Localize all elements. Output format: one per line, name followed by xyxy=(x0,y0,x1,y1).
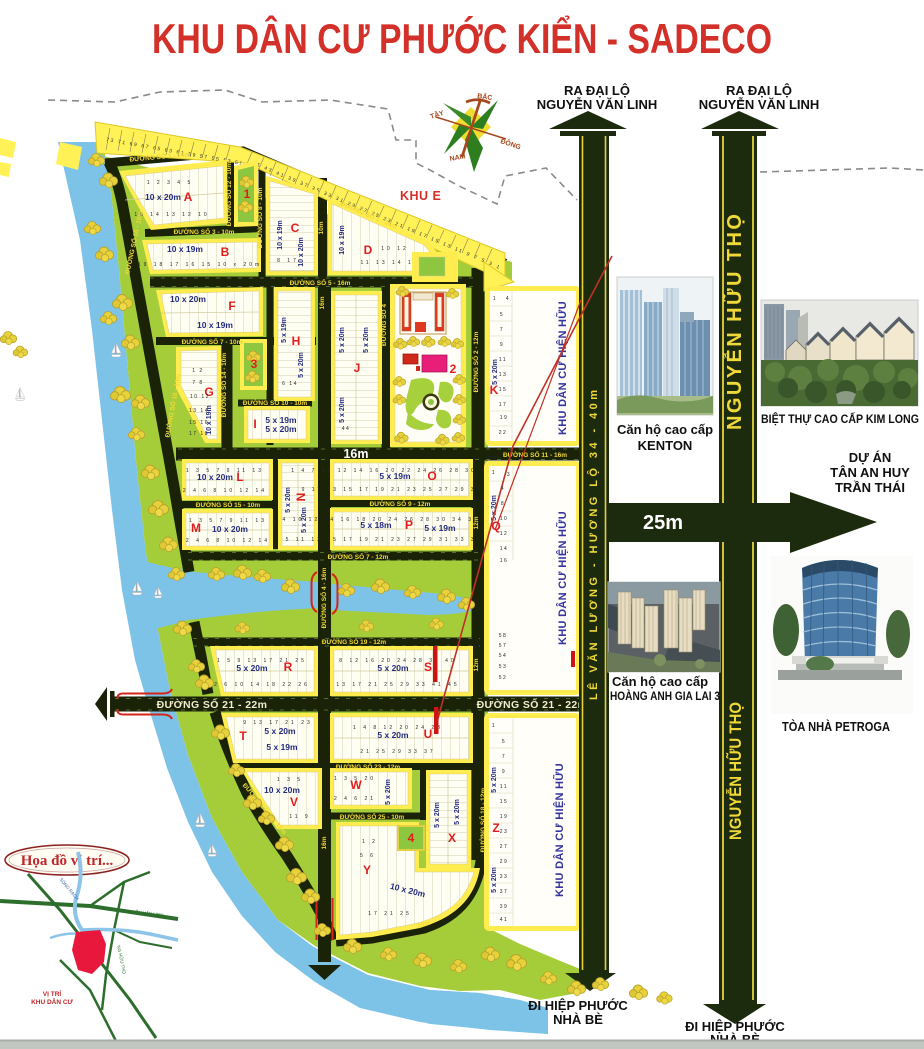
svg-text:1 4 8 12 20 24 28: 1 4 8 12 20 24 28 xyxy=(353,725,443,731)
svg-text:16m: 16m xyxy=(321,836,328,849)
svg-text:7 8: 7 8 xyxy=(192,380,203,386)
svg-text:KHU DÂN CƯ PHƯỚC KIỂN - SADECO: KHU DÂN CƯ PHƯỚC KIỂN - SADECO xyxy=(152,14,772,62)
svg-text:53: 53 xyxy=(499,664,508,670)
svg-text:KHU DÂN CƯ HIỆN HỮU: KHU DÂN CƯ HIỆN HỮU xyxy=(556,511,569,645)
svg-text:12m: 12m xyxy=(473,658,480,671)
svg-text:NGUYỄN HỮU THỌ: NGUYỄN HỮU THỌ xyxy=(725,702,745,840)
svg-text:1 3 5: 1 3 5 xyxy=(277,777,303,783)
svg-text:10 x 20m: 10 x 20m xyxy=(170,294,206,304)
svg-text:B: B xyxy=(221,245,230,259)
svg-text:5 x 20m: 5 x 20m xyxy=(454,799,461,825)
svg-text:10 x 19m: 10 x 19m xyxy=(339,225,346,255)
svg-text:K: K xyxy=(490,383,499,397)
svg-text:22: 22 xyxy=(499,430,508,436)
svg-text:BIỆT THỰ CAO CẤP KIM LONG: BIỆT THỰ CAO CẤP KIM LONG xyxy=(761,411,919,426)
svg-text:11 9: 11 9 xyxy=(289,814,310,820)
svg-text:7: 7 xyxy=(502,754,506,760)
svg-text:58: 58 xyxy=(499,633,508,639)
svg-text:VỊ TRÍ: VỊ TRÍ xyxy=(43,989,62,998)
svg-text:5 x 20m: 5 x 20m xyxy=(434,802,441,828)
svg-text:1 2: 1 2 xyxy=(362,839,378,845)
svg-text:1 3 5 7 9 11 13: 1 3 5 7 9 11 13 xyxy=(186,468,264,474)
svg-text:HOÀNG ANH GIA LAI 3: HOÀNG ANH GIA LAI 3 xyxy=(610,688,720,703)
svg-text:1: 1 xyxy=(492,470,496,476)
svg-text:3: 3 xyxy=(507,472,511,478)
svg-text:4: 4 xyxy=(506,296,510,302)
svg-text:NGUYỄN HỮU THỌ: NGUYỄN HỮU THỌ xyxy=(722,214,746,430)
svg-text:ĐI HIỆP PHƯỚC: ĐI HIỆP PHƯỚC xyxy=(528,998,628,1013)
svg-text:9: 9 xyxy=(500,342,504,348)
svg-text:8 12 16 20 24 28 3: 8 12 16 20 24 28 32 40 xyxy=(339,658,456,664)
svg-text:4: 4 xyxy=(408,831,415,845)
svg-text:10 x 19m: 10 x 19m xyxy=(277,220,284,250)
svg-text:F: F xyxy=(228,299,235,313)
svg-text:41: 41 xyxy=(500,917,509,923)
svg-text:5 x 19m: 5 x 19m xyxy=(281,317,288,343)
svg-text:52: 52 xyxy=(499,675,508,681)
svg-text:10 x 20m: 10 x 20m xyxy=(145,192,181,202)
svg-text:1 3 5 20: 1 3 5 20 xyxy=(334,776,376,782)
svg-text:ĐƯỜNG SỐ 21 - 22m: ĐƯỜNG SỐ 21 - 22m xyxy=(477,697,588,711)
svg-text:6 14: 6 14 xyxy=(282,381,298,387)
svg-text:13: 13 xyxy=(499,372,508,378)
svg-text:33: 33 xyxy=(500,874,509,880)
svg-text:9: 9 xyxy=(502,769,506,775)
svg-text:39: 39 xyxy=(500,904,509,910)
svg-text:5 6: 5 6 xyxy=(360,853,376,859)
svg-text:1 4 7 10 12 14 16 20 22 24 26: 1 4 7 10 12 14 16 20 22 24 26 28 30 32 3… xyxy=(291,468,509,474)
svg-text:29: 29 xyxy=(500,859,509,865)
svg-text:NHÀ BÈ: NHÀ BÈ xyxy=(553,1012,603,1027)
svg-text:16m: 16m xyxy=(343,447,368,461)
svg-text:10 x 19m: 10 x 19m xyxy=(167,244,203,254)
svg-text:17 21 25: 17 21 25 xyxy=(368,911,411,917)
svg-text:H: H xyxy=(292,334,301,348)
svg-text:5 x 20m: 5 x 20m xyxy=(339,397,346,423)
svg-text:KHU DÂN CƯ HIỆN HỮU: KHU DÂN CƯ HIỆN HỮU xyxy=(556,301,569,435)
svg-text:1: 1 xyxy=(492,723,496,729)
svg-text:16: 16 xyxy=(500,558,509,564)
svg-text:2: 2 xyxy=(450,362,457,376)
svg-text:5 x 20m: 5 x 20m xyxy=(236,663,268,673)
svg-text:5 x 20m: 5 x 20m xyxy=(385,779,392,805)
svg-text:54: 54 xyxy=(499,653,508,659)
svg-text:RA ĐẠI LỘ: RA ĐẠI LỘ xyxy=(726,83,792,98)
svg-text:10 x 19m: 10 x 19m xyxy=(206,405,213,435)
svg-text:5 x 20m: 5 x 20m xyxy=(492,359,499,385)
svg-text:37: 37 xyxy=(500,889,509,895)
svg-text:1: 1 xyxy=(493,296,497,302)
svg-text:5: 5 xyxy=(500,312,504,318)
svg-text:10m: 10m xyxy=(318,221,325,234)
svg-text:TÒA NHÀ PETROGA: TÒA NHÀ PETROGA xyxy=(782,719,890,734)
svg-text:11: 11 xyxy=(500,784,508,790)
svg-text:5 x 20m: 5 x 20m xyxy=(339,327,346,353)
svg-text:1: 1 xyxy=(244,187,251,201)
svg-text:19: 19 xyxy=(500,415,509,421)
svg-text:16m: 16m xyxy=(319,296,326,309)
svg-text:KHU DÂN CƯ: KHU DÂN CƯ xyxy=(31,997,73,1006)
svg-text:10 x 20m: 10 x 20m xyxy=(298,237,305,267)
svg-text:5 11 13 15 17 19 21 23 27 29 3: 5 11 13 15 17 19 21 23 27 29 31 33 37 41… xyxy=(286,537,515,543)
svg-text:1 5 9 13 17 21 25: 1 5 9 13 17 21 25 xyxy=(217,658,307,664)
svg-text:15: 15 xyxy=(500,799,509,805)
svg-text:21 25 29 33 37: 21 25 29 33 37 xyxy=(360,749,435,755)
svg-text:ĐƯỜNG SỐ 21 - 22m: ĐƯỜNG SỐ 21 - 22m xyxy=(157,697,268,711)
svg-text:9 11 13 15 17 19 21 23 25 27 2: 9 11 13 15 17 19 21 23 25 27 29 31 33 xyxy=(302,487,499,493)
svg-text:11 13 14 15: 11 13 14 15 xyxy=(360,260,419,266)
svg-text:15: 15 xyxy=(499,387,508,393)
svg-text:KENTON: KENTON xyxy=(638,438,693,453)
svg-text:14: 14 xyxy=(500,546,509,552)
svg-text:A: A xyxy=(184,190,193,204)
svg-text:TRẦN THÁI: TRẦN THÁI xyxy=(835,480,905,495)
svg-text:C: C xyxy=(291,221,300,235)
svg-text:KHU DÂN CƯ HIỆN HỮU: KHU DÂN CƯ HIỆN HỮU xyxy=(553,763,566,897)
svg-text:2 4 6 8 10 12 14: 2 4 6 8 10 12 14 xyxy=(183,488,267,494)
svg-text:DỰ ÁN: DỰ ÁN xyxy=(849,450,892,465)
svg-text:I: I xyxy=(253,417,256,431)
svg-text:D: D xyxy=(364,243,373,257)
svg-text:10 12: 10 12 xyxy=(190,394,210,400)
svg-text:2 4 6 8 10 12 14: 2 4 6 8 10 12 14 xyxy=(186,538,270,544)
svg-text:5 x 20m: 5 x 20m xyxy=(264,726,296,736)
svg-text:10: 10 xyxy=(500,516,509,522)
svg-text:5 x 20m: 5 x 20m xyxy=(491,767,498,793)
svg-text:Căn hộ cao cấp: Căn hộ cao cấp xyxy=(617,422,713,437)
svg-text:5 x 20m: 5 x 20m xyxy=(298,352,305,378)
svg-text:1 2 3 4 5: 1 2 3 4 5 xyxy=(147,180,193,186)
svg-text:TÂN AN HUY: TÂN AN HUY xyxy=(830,465,910,480)
svg-text:16 14 13 12 10: 16 14 13 12 10 xyxy=(134,212,209,218)
svg-text:27: 27 xyxy=(500,844,509,850)
svg-text:5 x 20m: 5 x 20m xyxy=(265,424,297,434)
svg-text:1 2: 1 2 xyxy=(192,368,203,374)
svg-text:19 18 17 16 15 10 x 20m: 19 18 17 16 15 10 x 20m xyxy=(138,262,262,268)
svg-text:44: 44 xyxy=(342,426,351,432)
svg-text:RA ĐẠI LỘ: RA ĐẠI LỘ xyxy=(564,83,630,98)
svg-text:5 x 20m: 5 x 20m xyxy=(491,867,498,893)
svg-text:N: N xyxy=(294,493,308,502)
svg-text:19: 19 xyxy=(500,814,509,820)
svg-text:5 x 20m: 5 x 20m xyxy=(491,495,498,521)
svg-text:5 x 20m: 5 x 20m xyxy=(363,327,370,353)
svg-text:X: X xyxy=(448,831,456,845)
svg-text:5 x 20m: 5 x 20m xyxy=(377,663,409,673)
svg-text:13 17 21 25 29 33: 13 17 21 25 29 33 41 45 xyxy=(336,682,459,688)
svg-text:11: 11 xyxy=(499,357,507,363)
svg-text:25m: 25m xyxy=(643,512,683,534)
svg-text:9 13 17 21 23: 9 13 17 21 23 xyxy=(243,720,313,726)
svg-text:10 12: 10 12 xyxy=(381,246,409,252)
svg-text:12m: 12m xyxy=(473,516,480,529)
svg-text:8 17: 8 17 xyxy=(277,258,299,264)
svg-text:NGUYỄN VĂN LINH: NGUYỄN VĂN LINH xyxy=(537,97,658,112)
svg-text:Y: Y xyxy=(363,863,371,877)
svg-text:5 x 19m: 5 x 19m xyxy=(424,523,456,533)
svg-text:7: 7 xyxy=(500,327,504,333)
svg-text:1 3 5 7 9 11 13: 1 3 5 7 9 11 13 xyxy=(189,518,267,524)
svg-text:Căn hộ cao cấp: Căn hộ cao cấp xyxy=(612,674,708,689)
svg-text:T: T xyxy=(239,729,247,743)
svg-text:3: 3 xyxy=(251,357,258,371)
svg-text:5 x 20m: 5 x 20m xyxy=(377,730,409,740)
svg-text:2 4 6 21: 2 4 6 21 xyxy=(334,796,376,802)
svg-text:J: J xyxy=(354,361,361,375)
svg-text:17: 17 xyxy=(499,402,508,408)
svg-text:10 x 20m: 10 x 20m xyxy=(264,785,300,795)
svg-text:10 x 19m: 10 x 19m xyxy=(197,320,233,330)
svg-text:5 x 20m: 5 x 20m xyxy=(285,487,292,513)
svg-text:NGUYỄN VĂN LINH: NGUYỄN VĂN LINH xyxy=(699,97,820,112)
svg-text:12: 12 xyxy=(500,531,509,537)
svg-text:5 x 19m: 5 x 19m xyxy=(266,742,298,752)
svg-text:23: 23 xyxy=(500,829,509,835)
svg-text:2 6 10 14 18 22 26: 2 6 10 14 18 22 26 xyxy=(214,682,310,688)
svg-text:KHU E: KHU E xyxy=(400,189,441,203)
svg-text:Họa đồ vị trí...: Họa đồ vị trí... xyxy=(21,853,114,869)
svg-text:57: 57 xyxy=(499,643,508,649)
svg-text:10 x 20m: 10 x 20m xyxy=(212,524,248,534)
svg-text:5: 5 xyxy=(502,739,506,745)
svg-text:Z: Z xyxy=(492,821,499,835)
svg-text:V: V xyxy=(290,795,298,809)
